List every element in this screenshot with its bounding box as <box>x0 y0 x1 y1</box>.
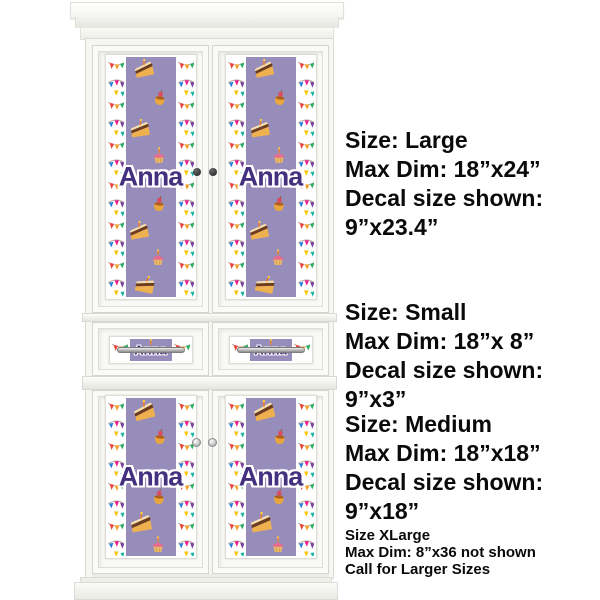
decal-name-text: Anna <box>239 162 303 193</box>
cake-slice-icon <box>128 220 148 240</box>
custard-cherry-icon <box>273 195 284 211</box>
size-block-xlarge: Size XLarge Max Dim: 8”x36 not shown Cal… <box>345 527 536 578</box>
max-dim: Max Dim: 18”x 8” <box>345 327 543 356</box>
cake-slice-icon <box>249 118 269 137</box>
cake-slice-icon <box>254 273 275 293</box>
drawer-right: Anna <box>212 322 329 376</box>
cake-slice-icon <box>134 273 155 293</box>
cupcake-candle-icon <box>152 249 162 265</box>
door-knob-icon <box>192 438 201 447</box>
decal-shown-value: 9”x18” <box>345 497 543 526</box>
upper-door-left: Anna <box>92 45 209 313</box>
lower-door-left: Anna <box>92 390 209 574</box>
armoire-base <box>74 582 338 600</box>
cupcake-candle-icon <box>272 249 282 265</box>
cake-slice-icon <box>249 511 272 533</box>
decal-name-text: Anna <box>119 162 183 193</box>
size-label: Size: Large <box>345 126 543 155</box>
decal-large-right: Anna <box>225 54 317 300</box>
cupcake-candle-icon <box>152 536 162 552</box>
size-block-small: Size: Small Max Dim: 18”x 8” Decal size … <box>345 298 543 414</box>
size-block-large: Size: Large Max Dim: 18”x24” Decal size … <box>345 126 543 242</box>
max-dim: Max Dim: 18”x24” <box>345 155 543 184</box>
cake-slice-icon <box>253 57 274 77</box>
middle-divider <box>82 313 337 322</box>
door-knob-icon <box>193 168 201 176</box>
lower-divider <box>82 376 337 390</box>
cake-slice-icon <box>131 398 155 421</box>
product-preview-image: Anna <box>0 0 600 600</box>
decal-shown-value: 9”x23.4” <box>345 213 543 242</box>
decal-medium-left: Anna <box>105 395 197 559</box>
size-label: Size: Medium <box>345 410 543 439</box>
decal-large-left: Anna <box>105 54 197 300</box>
cake-slice-icon <box>129 511 152 533</box>
custard-cherry-icon <box>154 428 165 444</box>
door-knob-icon <box>208 438 217 447</box>
decal-shown-label: Decal size shown: <box>345 356 543 385</box>
cake-slice-icon <box>251 398 275 421</box>
armoire: Anna <box>70 2 342 600</box>
max-dim: Max Dim: 18”x18” <box>345 439 543 468</box>
cake-slice-icon <box>248 220 268 240</box>
door-knob-icon <box>209 168 217 176</box>
armoire-body: Anna <box>85 38 334 579</box>
xlarge-label: Size XLarge <box>345 527 536 544</box>
decal-medium-right: Anna <box>225 395 317 559</box>
lower-door-right: Anna <box>212 390 329 574</box>
custard-cherry-icon <box>153 195 164 211</box>
drawer-pull-icon <box>237 347 305 353</box>
xlarge-call-note: Call for Larger Sizes <box>345 561 536 578</box>
decal-shown-label: Decal size shown: <box>345 468 543 497</box>
custard-cherry-icon <box>154 89 165 105</box>
size-label: Size: Small <box>345 298 543 327</box>
drawer-left: Anna <box>92 322 209 376</box>
decal-name-text: Anna <box>239 462 303 493</box>
custard-cherry-icon <box>274 89 285 105</box>
cake-slice-icon <box>129 118 149 137</box>
cake-slice-icon <box>133 57 154 77</box>
xlarge-max-dim: Max Dim: 8”x36 not shown <box>345 544 536 561</box>
upper-door-right: Anna <box>212 45 329 313</box>
decal-name-text: Anna <box>119 462 183 493</box>
size-block-medium: Size: Medium Max Dim: 18”x18” Decal size… <box>345 410 543 526</box>
drawer-pull-icon <box>117 347 185 353</box>
custard-cherry-icon <box>274 428 285 444</box>
decal-shown-label: Decal size shown: <box>345 184 543 213</box>
cupcake-candle-icon <box>272 536 282 552</box>
armoire-crown-molding <box>75 17 339 28</box>
